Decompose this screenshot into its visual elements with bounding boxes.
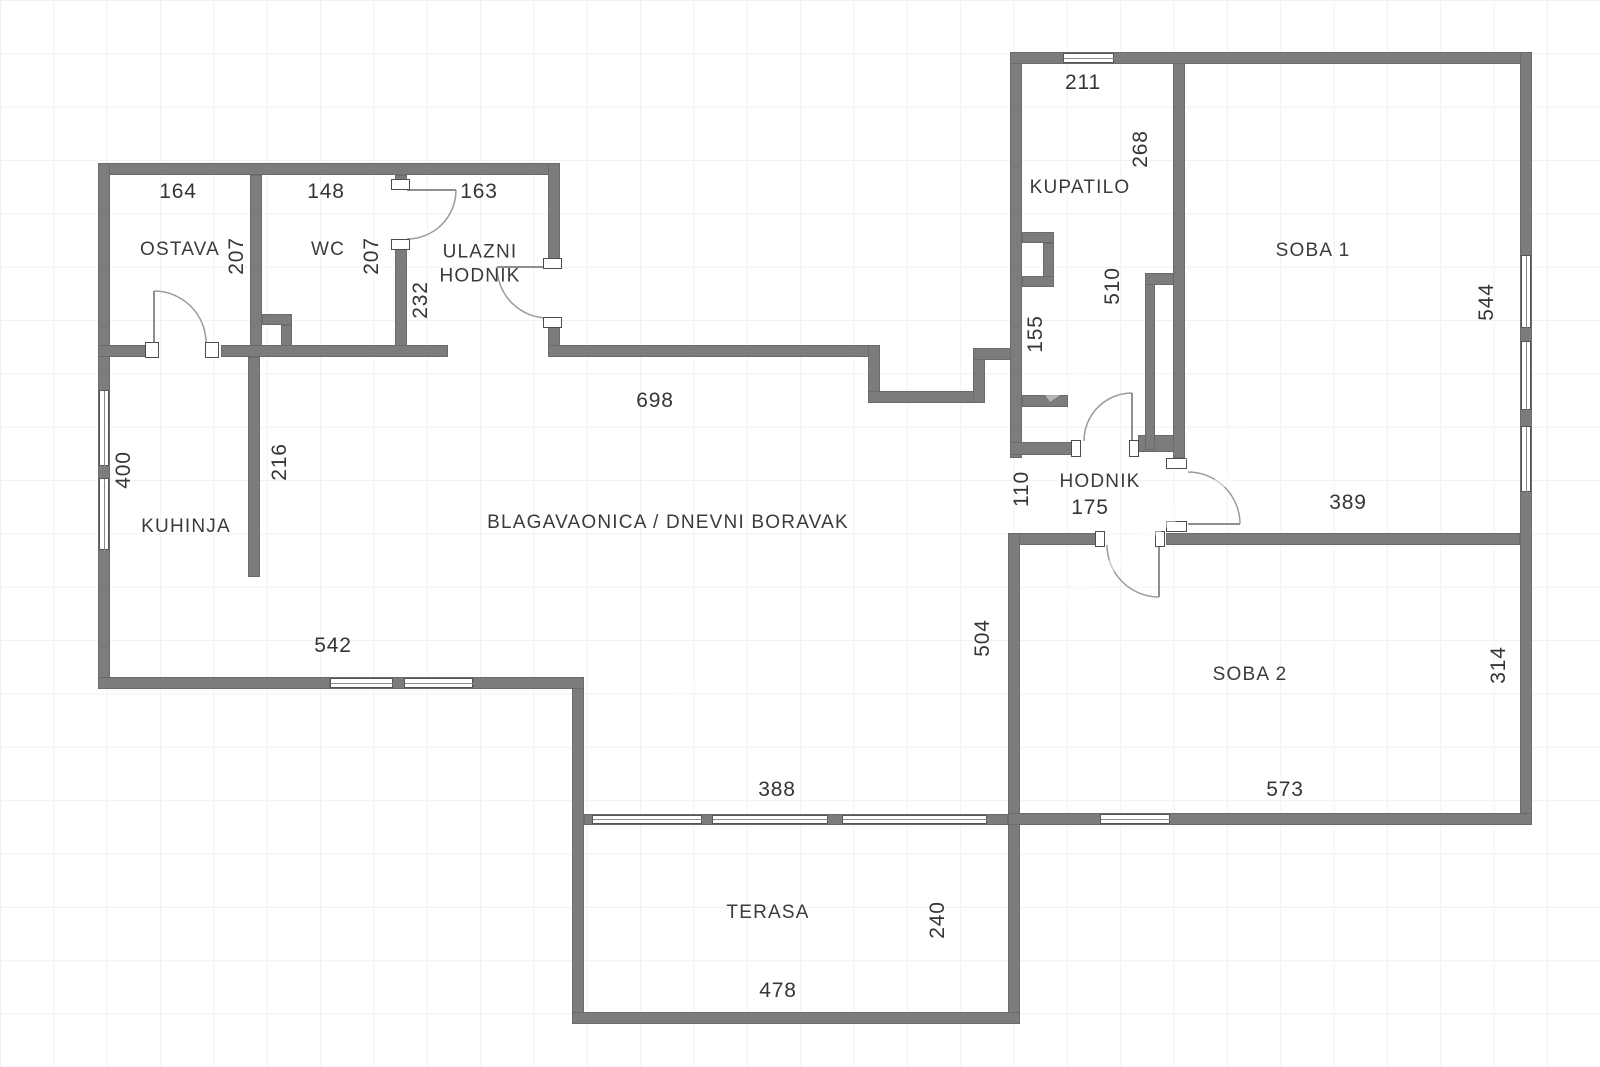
room-label-ostava: OSTAVA <box>140 238 220 262</box>
dimension-label: 232 <box>409 281 433 318</box>
dimension-label: 240 <box>926 901 950 938</box>
room-label-ulazni-hodnik: ULAZNI HODNIK <box>439 240 520 288</box>
dimension-label: 163 <box>460 180 497 204</box>
room-label-kupatilo: KUPATILO <box>1030 176 1131 200</box>
door-jamb <box>543 258 562 269</box>
door-jamb <box>145 342 159 358</box>
room-label-hodnik: HODNIK <box>1059 470 1140 494</box>
dimension-label: 155 <box>1024 315 1048 352</box>
dimension-label: 148 <box>307 180 344 204</box>
kupatilo-door-arc <box>1084 393 1132 441</box>
dimension-label: 510 <box>1101 267 1125 304</box>
dimension-label: 389 <box>1329 491 1366 515</box>
room-label-soba-1: SOBA 1 <box>1276 239 1351 263</box>
door-jamb <box>205 342 219 358</box>
door-jamb <box>1129 440 1139 457</box>
dimension-label: 698 <box>636 389 673 413</box>
ostava-door-arc <box>154 291 206 343</box>
door-jamb <box>391 179 410 190</box>
dimension-label: 175 <box>1071 496 1108 520</box>
room-label-kuhinja: KUHINJA <box>141 515 231 539</box>
dimension-label: 207 <box>225 237 249 274</box>
dimension-label: 207 <box>360 237 384 274</box>
dimension-label: 573 <box>1266 778 1303 802</box>
dimension-label: 268 <box>1129 130 1153 167</box>
dimension-label: 478 <box>759 979 796 1003</box>
room-label-soba-2: SOBA 2 <box>1213 663 1288 687</box>
dimension-label: 110 <box>1010 471 1034 507</box>
room-label-wc: WC <box>311 238 345 262</box>
door-jamb <box>1071 440 1081 457</box>
floorplan-canvas: OSTAVAWCULAZNI HODNIKKUPATILOSOBA 1KUHIN… <box>0 0 1600 1067</box>
door-jamb <box>1166 458 1187 469</box>
door-jamb <box>391 239 410 250</box>
dimension-label: 400 <box>112 451 136 488</box>
dimension-label: 544 <box>1475 283 1499 320</box>
dimension-label: 216 <box>268 443 292 480</box>
door-jamb <box>543 317 562 328</box>
room-label-terasa: TERASA <box>726 901 809 925</box>
dimension-label: 542 <box>314 634 351 658</box>
dimension-label: 211 <box>1065 71 1101 95</box>
dimension-label: 164 <box>159 180 196 204</box>
dimension-label: 388 <box>758 778 795 802</box>
door-jamb <box>1095 531 1105 547</box>
dimension-label: 504 <box>971 619 995 656</box>
dimension-label: 314 <box>1487 646 1511 683</box>
room-label-blagavaonica: BLAGAVAONICA / DNEVNI BORAVAK <box>487 511 849 535</box>
wc-door-arc <box>407 190 456 239</box>
